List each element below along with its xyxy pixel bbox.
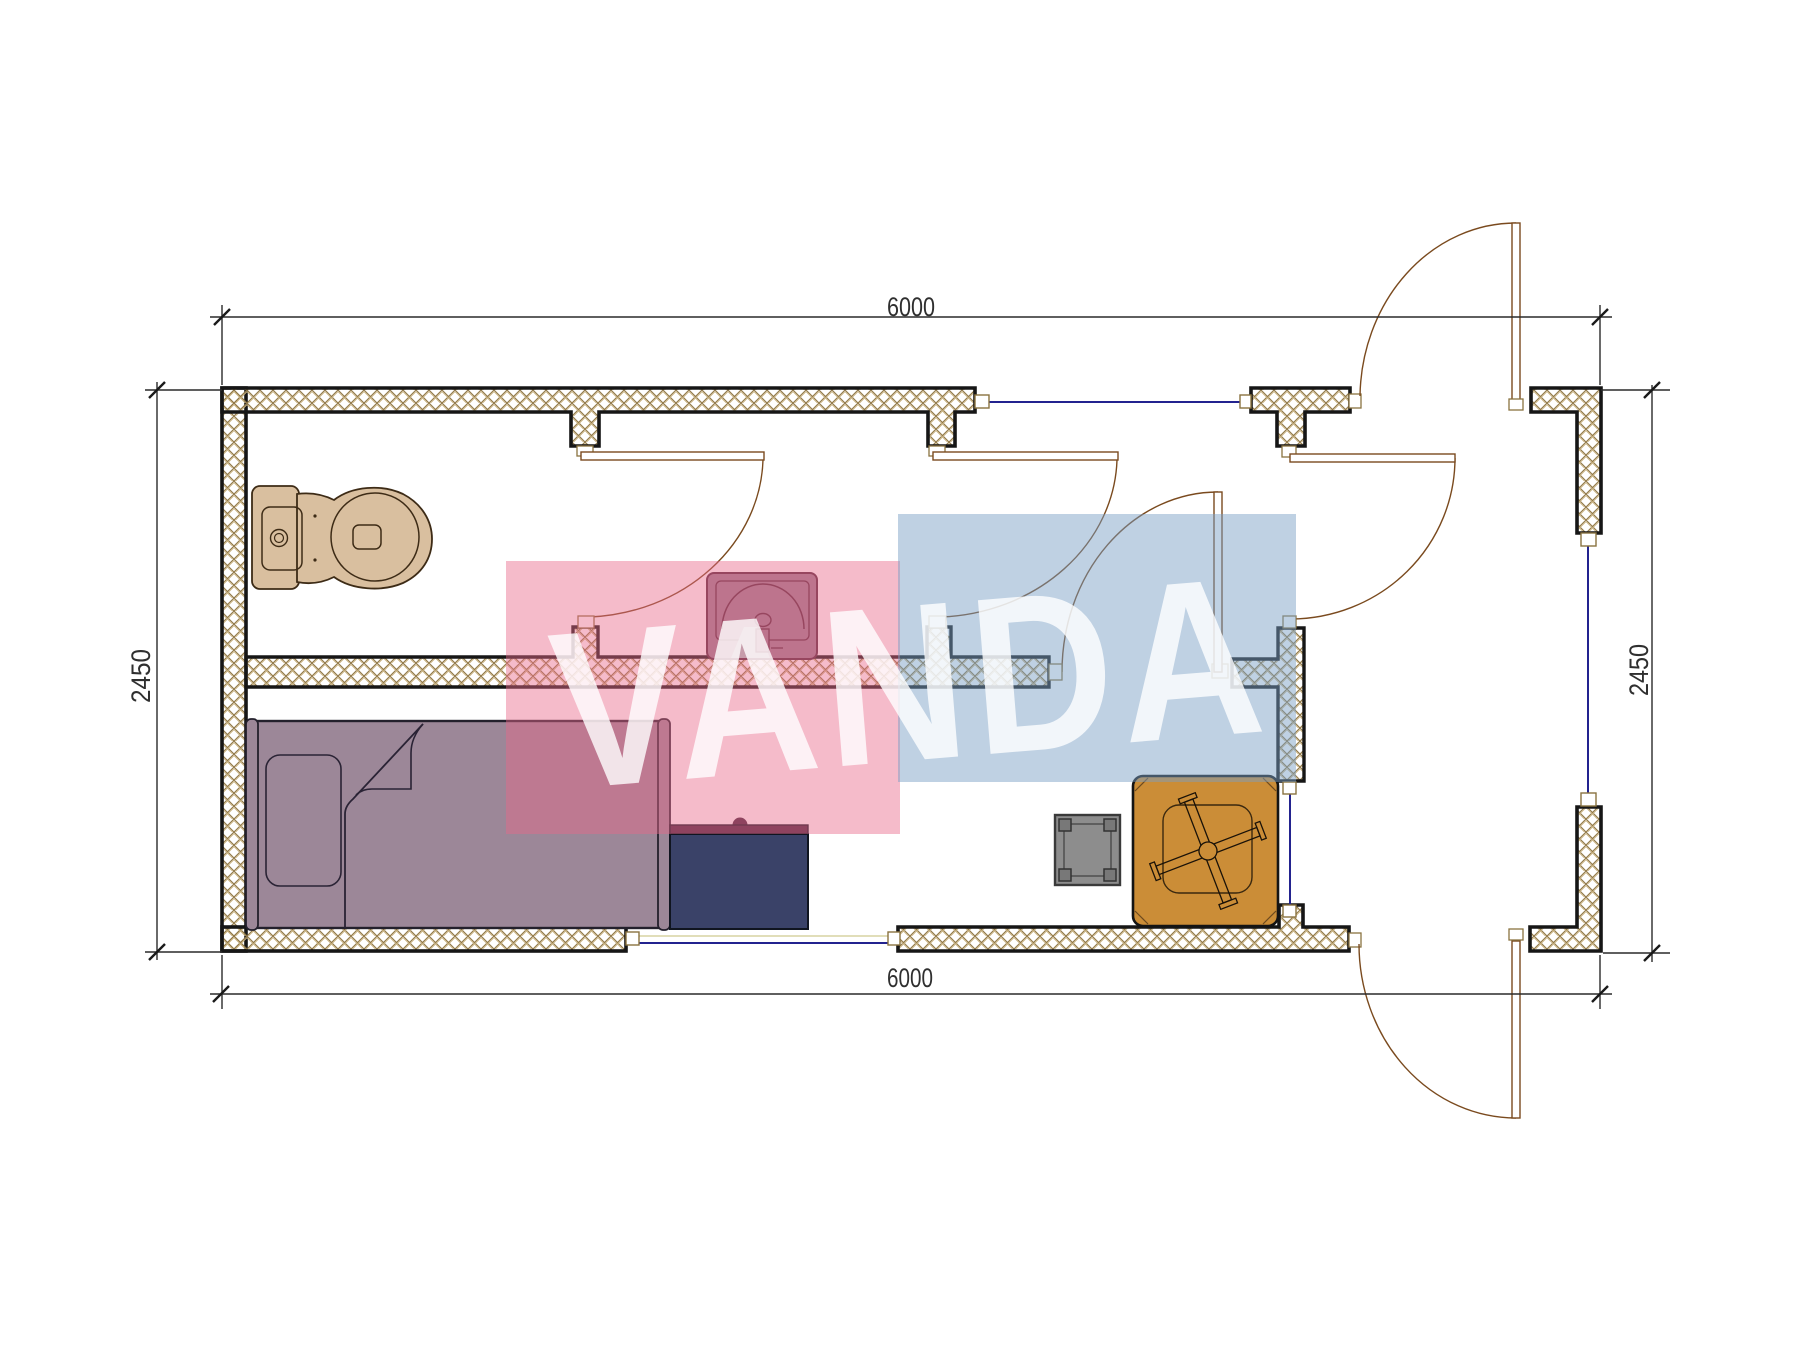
- svg-text:6000: 6000: [887, 292, 935, 322]
- svg-text:2450: 2450: [1624, 644, 1654, 696]
- svg-text:2450: 2450: [126, 649, 156, 703]
- svg-text:6000: 6000: [887, 963, 933, 993]
